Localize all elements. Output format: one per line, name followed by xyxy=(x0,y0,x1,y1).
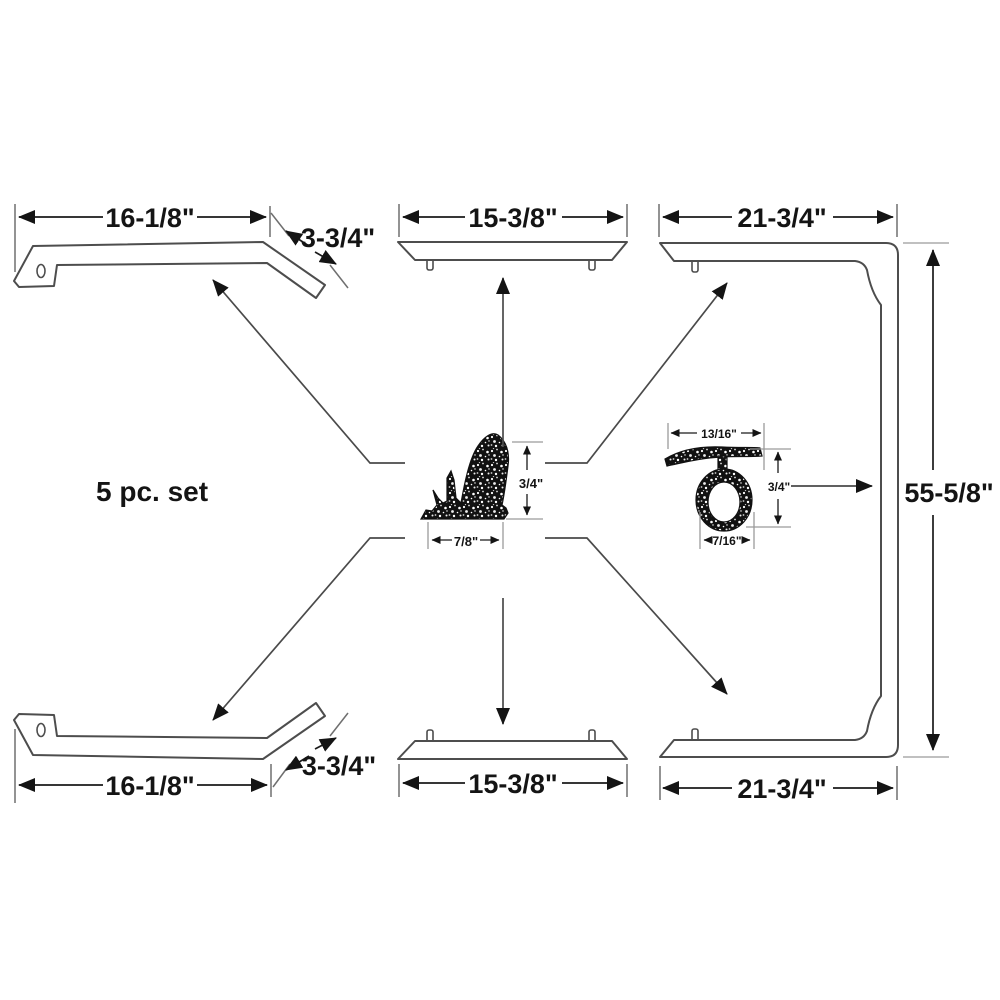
dim-label-right-frame-top: 21-3/4" xyxy=(737,203,826,233)
dim-label-top-left-end: 3-3/4" xyxy=(301,223,375,253)
top-center-strip-outline xyxy=(398,242,627,260)
bottom-left-rail xyxy=(14,703,325,759)
pointer-arrow-bottom-left xyxy=(213,538,405,720)
pointer-arrow-top-left xyxy=(213,280,405,463)
ring-profile-top-bar xyxy=(665,447,762,466)
dim-label-ring-height: 3/4" xyxy=(768,480,790,494)
ring-cross-section: 13/16" 3/4" 7/16" xyxy=(665,423,872,549)
dim-label-bottom-left-length: 16-1/8" xyxy=(105,771,194,801)
diagram-canvas: 16-1/8" 3-3/4" 15-3/8" 21-3/4" xyxy=(0,0,1000,1000)
dim-label-right-frame-bottom: 21-3/4" xyxy=(737,774,826,804)
bottom-left-rail-outline xyxy=(14,703,325,759)
top-center-strip xyxy=(398,242,627,270)
top-left-rail-outline xyxy=(14,242,325,298)
ring-profile-ring-inner xyxy=(708,482,740,522)
pointer-arrow-top-right xyxy=(545,283,727,463)
dim-label-fin-height: 3/4" xyxy=(519,476,543,491)
fin-profile-shape xyxy=(421,434,509,519)
set-count-label: 5 pc. set xyxy=(96,476,208,507)
bottom-center-strip xyxy=(398,730,627,759)
dim-right-frame-top: 21-3/4" xyxy=(659,203,897,237)
dim-label-right-frame-height: 55-5/8" xyxy=(904,478,993,508)
dim-label-ring-bottom-width: 7/16" xyxy=(712,534,741,548)
dim-label-bottom-center-length: 15-3/8" xyxy=(468,769,557,799)
dim-bottom-center-length: 15-3/8" xyxy=(399,764,627,799)
dim-top-center-length: 15-3/8" xyxy=(399,203,627,237)
dim-fin-height: 3/4" xyxy=(506,442,543,519)
dim-fin-width: 7/8" xyxy=(428,522,503,549)
dim-right-frame-height: 55-5/8" xyxy=(903,243,994,757)
top-left-rail xyxy=(14,242,325,298)
top-left-rail-hole xyxy=(37,265,45,278)
weatherstrip-set-diagram: 16-1/8" 3-3/4" 15-3/8" 21-3/4" xyxy=(0,0,1000,1000)
pointer-arrow-bottom-right xyxy=(545,538,727,694)
dim-label-top-left-length: 16-1/8" xyxy=(105,203,194,233)
dim-label-bottom-left-end: 3-3/4" xyxy=(302,751,376,781)
dim-ring-height: 3/4" xyxy=(746,449,791,527)
fin-cross-section: 3/4" 7/8" xyxy=(421,434,543,549)
bottom-center-strip-outline xyxy=(398,741,627,759)
bottom-left-rail-hole xyxy=(37,724,45,737)
dim-label-ring-top-width: 13/16" xyxy=(701,427,737,441)
dim-right-frame-bottom: 21-3/4" xyxy=(660,766,897,804)
dim-label-fin-width: 7/8" xyxy=(454,534,478,549)
dim-label-top-center-length: 15-3/8" xyxy=(468,203,557,233)
